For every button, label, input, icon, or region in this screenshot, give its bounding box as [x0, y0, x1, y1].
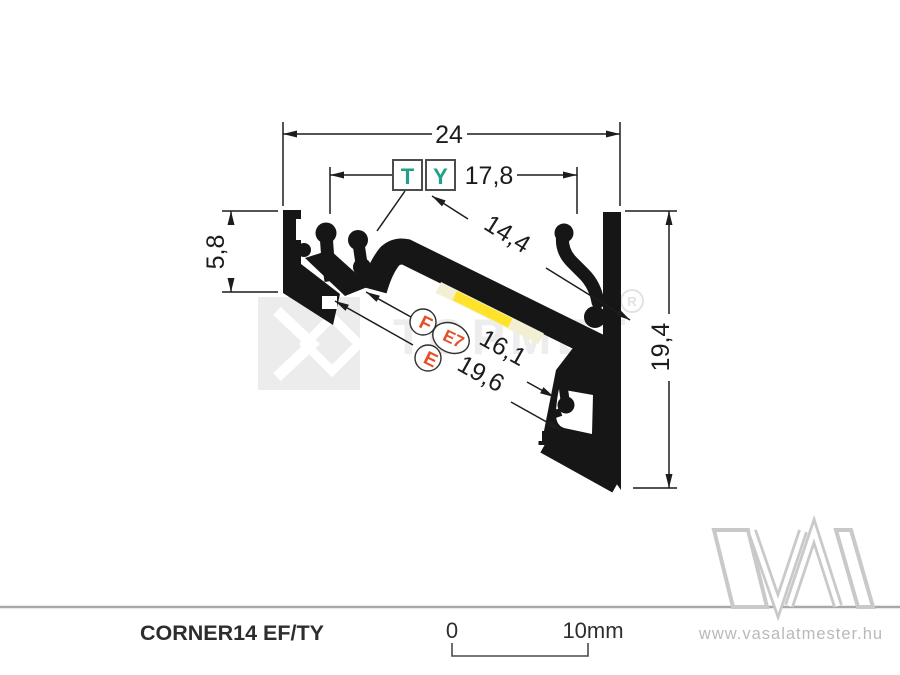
arrow-icon [563, 172, 577, 179]
dimension-overall-height: 19,4 [625, 211, 677, 488]
arrow-icon [666, 211, 673, 225]
vasalatmester-logo-icon [714, 530, 873, 607]
profile-right-finger-ball [584, 306, 606, 328]
dim-value: 14,4 [479, 209, 535, 259]
scale-bar: 0 10mm [446, 618, 624, 656]
profile-left-arm-bump [297, 243, 311, 257]
vm-logo-bar-right [836, 530, 873, 607]
arrow-icon [228, 211, 235, 225]
arrow-icon [606, 131, 620, 138]
marker-letter-y: Y [433, 164, 448, 189]
profile-left-foot-notch [322, 296, 337, 309]
profile-bottom-notch [529, 429, 542, 441]
website-link[interactable]: www.vasalatmester.hu [698, 625, 883, 643]
arrow-icon [666, 474, 673, 488]
arrow-icon [430, 193, 446, 206]
dim-value: 5,8 [202, 235, 230, 270]
scale-end-label: 10mm [562, 618, 623, 643]
technical-drawing-canvas: www.vasalatmester.hu TOPMET R [0, 0, 900, 675]
arrow-icon [330, 172, 344, 179]
arrow-icon [283, 131, 297, 138]
arrow-icon [228, 278, 235, 292]
profile-left-arm-slot [296, 219, 304, 240]
drawing-page: www.vasalatmester.hu TOPMET R [0, 0, 900, 675]
profile-right-finger-tip [555, 224, 574, 243]
dim-value: 17,8 [465, 162, 514, 190]
leader-line [377, 191, 405, 231]
dimension-clip-span: T Y 17,8 [330, 160, 577, 231]
profile-right-clip-finger [562, 233, 598, 302]
marker-letter-t: T [401, 164, 415, 189]
product-title: CORNER14 EF/TY [140, 621, 324, 645]
scale-bar-bracket [452, 643, 588, 656]
registered-mark-letter: R [627, 294, 637, 309]
dimension-arm-depth: 5,8 [202, 211, 278, 292]
scale-start-label: 0 [446, 618, 458, 643]
dim-value: 19,4 [647, 323, 675, 372]
dim-value: 24 [435, 121, 463, 149]
